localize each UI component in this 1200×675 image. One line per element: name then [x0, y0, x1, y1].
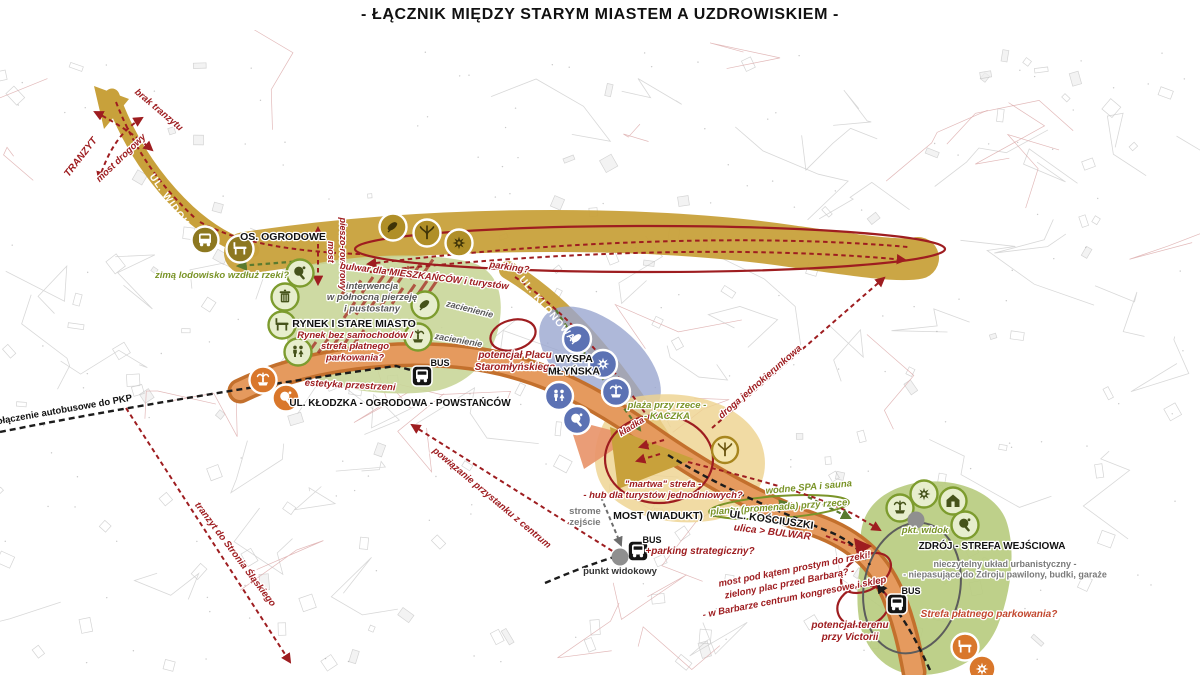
label-rynek-stare-miasto: RYNEK I STARE MIASTO: [292, 318, 415, 330]
labels-layer: brak tranzytuTRANZYTmost drogowyUL. WIDO…: [0, 87, 1107, 643]
label-brak-tranzytu: brak tranzytu: [132, 87, 185, 134]
label-droga-jedno: droga jednokierunkowa: [717, 343, 805, 421]
marker-flower-icon: [446, 230, 473, 257]
marker-paddle-icon: [563, 406, 591, 434]
label-os-ogrodowe: OS. OGRODOWE: [240, 231, 326, 243]
label-tranzyt: TRANZYT: [62, 135, 100, 179]
label-bus-2: BUS: [642, 535, 661, 545]
marker-fountain-icon: [250, 367, 277, 394]
title-bar: - ŁĄCZNIK MIĘDZY STARYM MIASTEM A UZDROW…: [0, 0, 1200, 30]
marker-tree-icon: [712, 437, 738, 463]
marker-leaf-icon: [380, 214, 407, 241]
label-tranzyt-stronie: tranzyt do Stronia Śląskiego: [192, 500, 279, 609]
marker-house-icon: [940, 488, 967, 515]
marker-tree-icon: [414, 220, 441, 247]
marker-trash-icon: [272, 284, 299, 311]
urban-plan-page: - ŁĄCZNIK MIĘDZY STARYM MIASTEM A UZDROW…: [0, 0, 1200, 675]
label-potencjal-victorii: potencjał terenuprzy Victorii: [810, 620, 888, 643]
label-most-wiadukt: MOST (WIADUKT): [613, 510, 703, 522]
marker-flower-icon: [969, 656, 996, 675]
label-strome: stromezejście: [569, 506, 601, 528]
label-most-pieszo-2: most: [326, 241, 336, 264]
marker-wc-icon: [285, 339, 312, 366]
marker-flower-icon: [911, 481, 938, 508]
marker-fountain-icon: [602, 378, 630, 406]
marker-paddle-icon: [952, 512, 979, 539]
label-wyspa-mlynska: WYSPAMŁYŃSKA: [548, 353, 600, 377]
label-zima-lodowisko: zimą lodowisko wzdłuż rzeki?: [154, 270, 289, 281]
label-strefa-platnego: Strefa płatnego parkowania?: [921, 609, 1058, 620]
label-parking-strat: +parking strategiczny?: [645, 546, 754, 557]
marker-dot-icon: [612, 549, 629, 566]
marker-wc-icon: [545, 382, 573, 410]
label-nieczytelny: nieczytelny układ urbanistyczny -- niepa…: [903, 559, 1107, 580]
marker-paddle-icon: [287, 260, 314, 287]
label-bus-1: BUS: [430, 358, 449, 368]
marker-bus-icon: [412, 366, 432, 386]
plan-map: brak tranzytuTRANZYTmost drogowyUL. WIDO…: [0, 0, 1200, 675]
label-potencjal-placu: potencjał PlacuStaromłyńskiego: [475, 350, 556, 373]
label-ul-klodzka: UL. KŁODZKA - OGRODOWA - POWSTAŃCÓW: [289, 396, 511, 409]
marker-bus-icon: [887, 594, 907, 614]
label-pkt-widok: pkt. widok: [901, 525, 949, 536]
page-title: - ŁĄCZNIK MIĘDZY STARYM MIASTEM A UZDROW…: [361, 6, 839, 24]
marker-bus-icon: [192, 227, 219, 254]
label-bus-3: BUS: [901, 586, 920, 596]
label-zdroj: ZDRÓJ - STREFA WEJŚCIOWA: [919, 539, 1066, 552]
label-punkt-widokowy: punkt widokowy: [583, 566, 658, 577]
label-powiazanie: powiązanie przystanku z centrum: [429, 445, 553, 551]
